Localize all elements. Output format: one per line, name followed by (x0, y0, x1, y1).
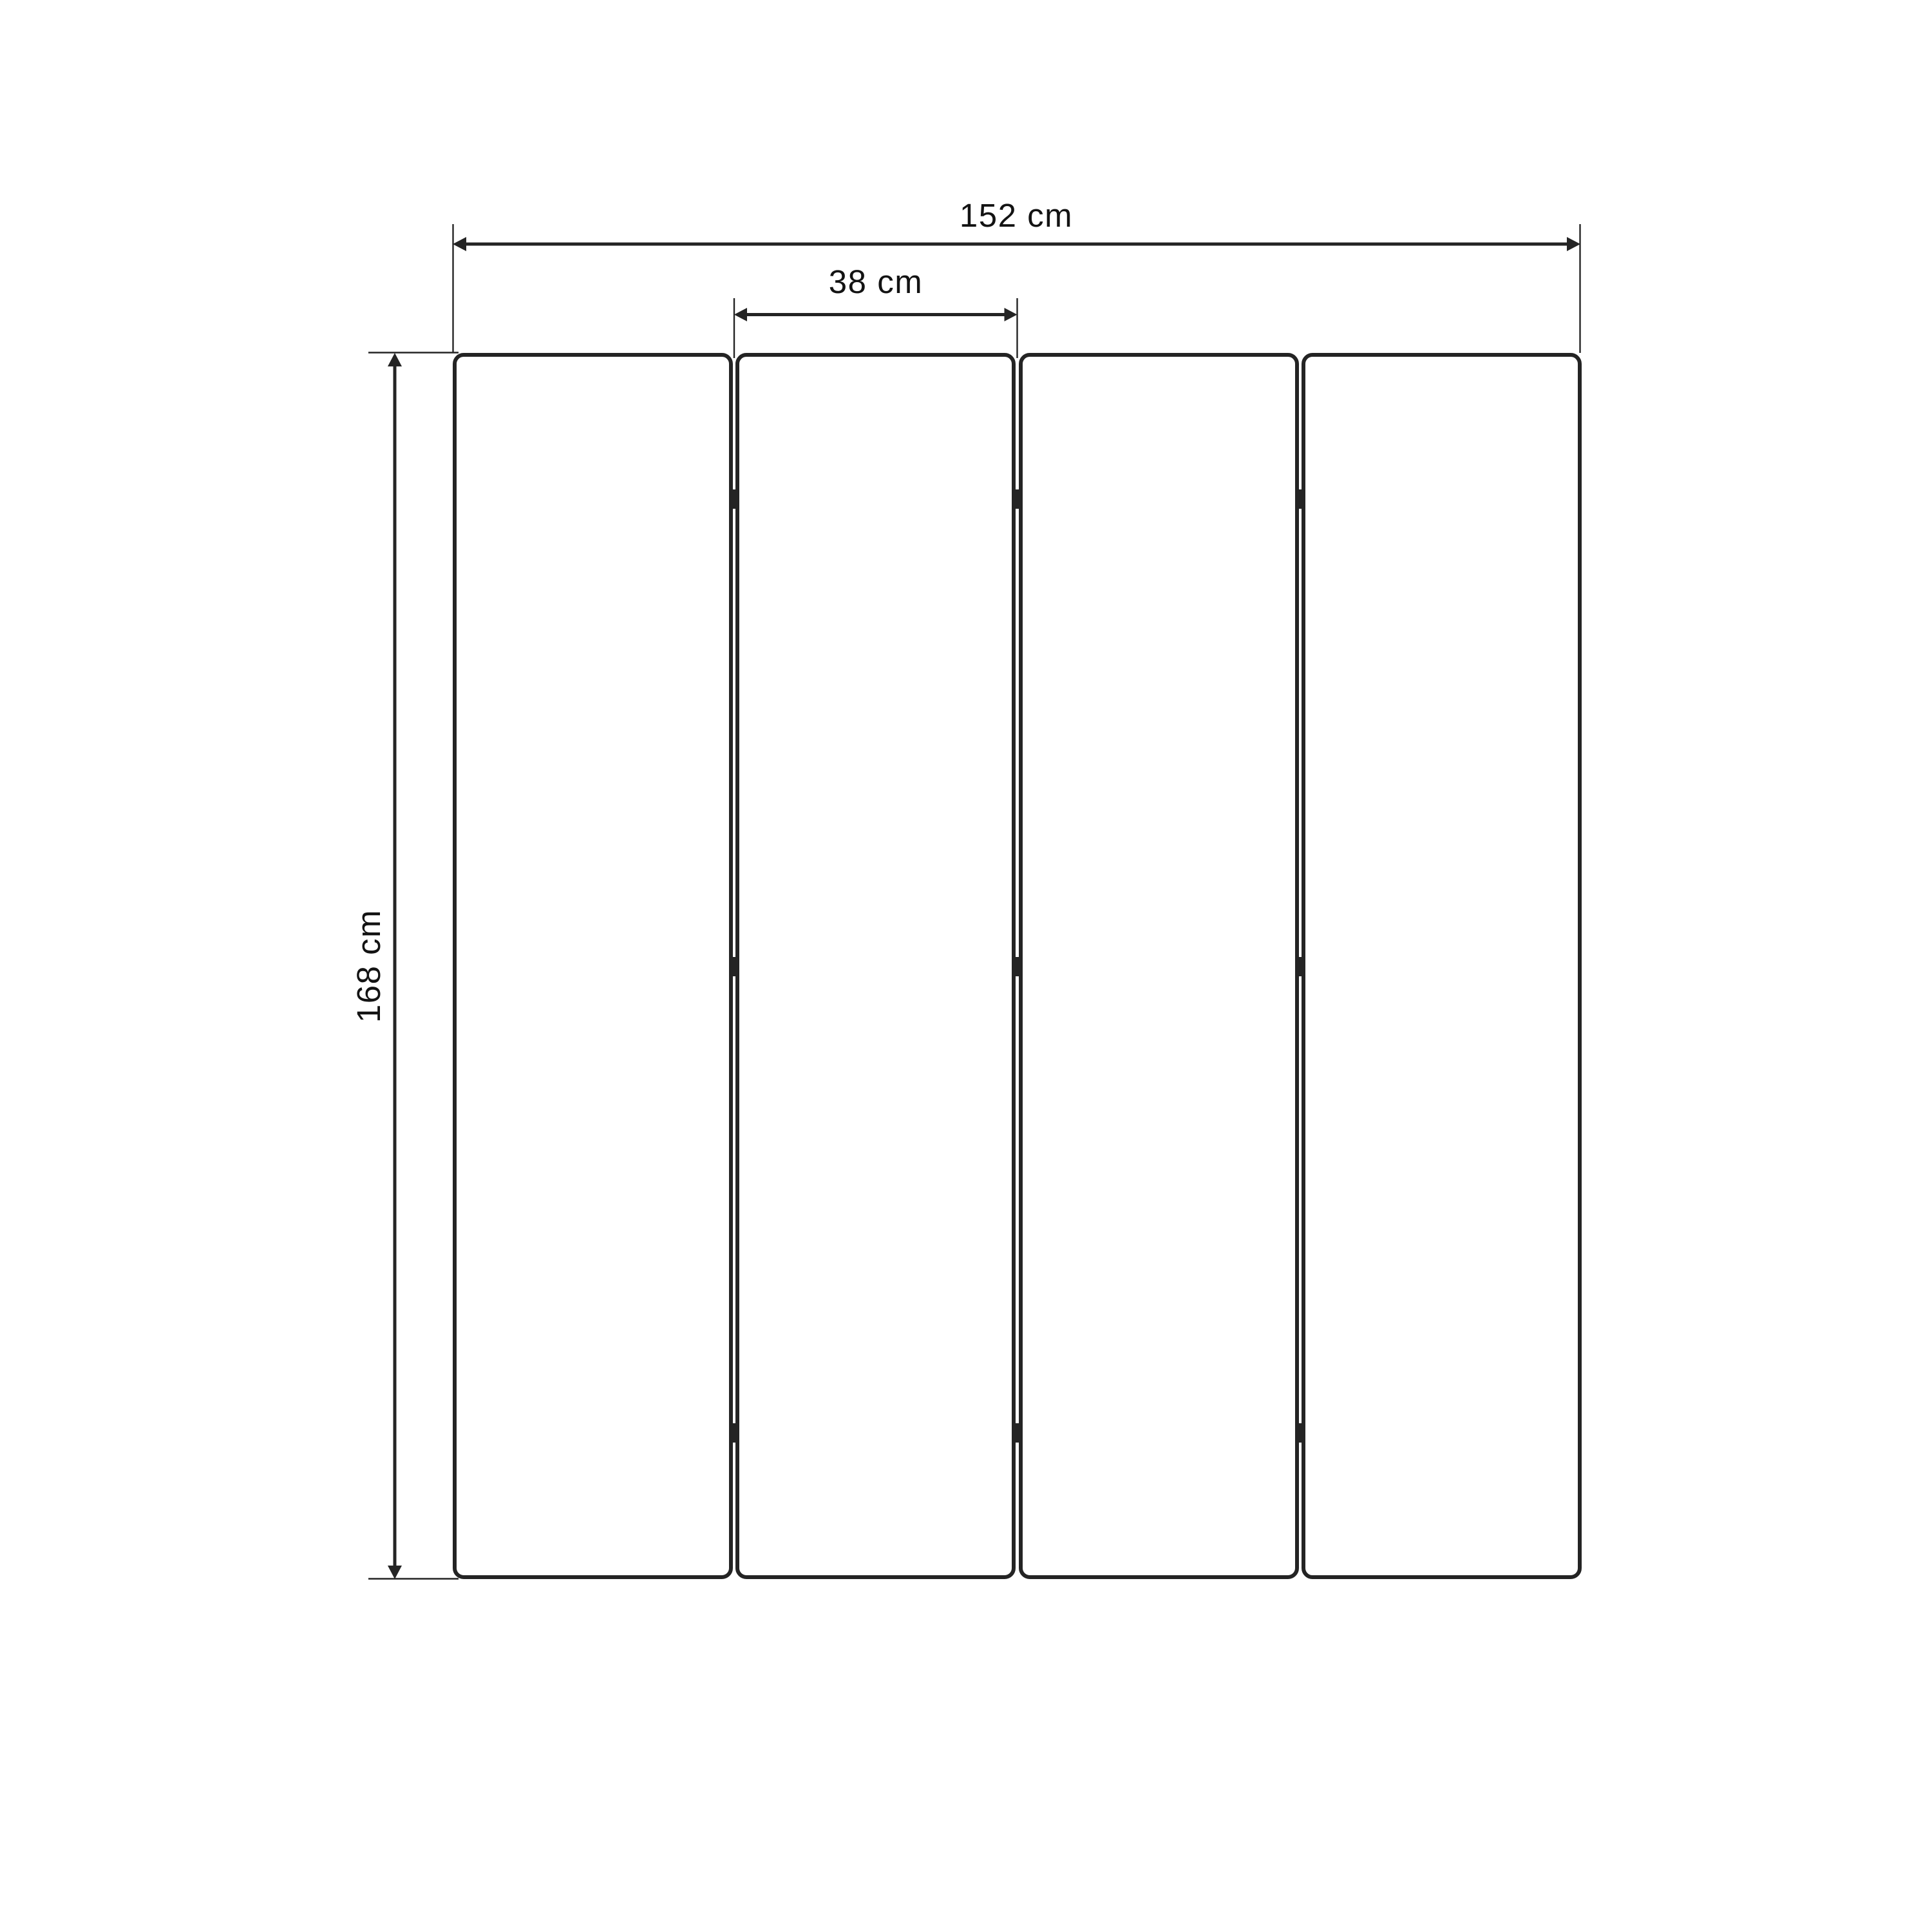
hinge-mark-junction3-top (1296, 489, 1305, 509)
panel-1 (455, 355, 731, 1577)
panel-width-label: 38 cm (829, 263, 923, 300)
height-label: 168 cm (350, 909, 387, 1023)
hinge-mark-junction2-bottom (1012, 1423, 1021, 1443)
hinge-mark-junction3-middle (1296, 957, 1305, 976)
hinge-mark-junction3-bottom (1296, 1423, 1305, 1443)
hinge-mark-junction2-top (1012, 489, 1021, 509)
dimension-diagram: 152 cm 38 cm 168 cm (0, 0, 1932, 1932)
hinge-mark-junction1-top (730, 489, 739, 509)
total-width-label: 152 cm (960, 197, 1073, 234)
panel-3 (1021, 355, 1297, 1577)
hinge-mark-junction1-middle (730, 957, 739, 976)
hinge-mark-junction1-bottom (730, 1423, 739, 1443)
panel-2 (737, 355, 1014, 1577)
hinge-mark-junction2-middle (1012, 957, 1021, 976)
panel-4 (1303, 355, 1580, 1577)
